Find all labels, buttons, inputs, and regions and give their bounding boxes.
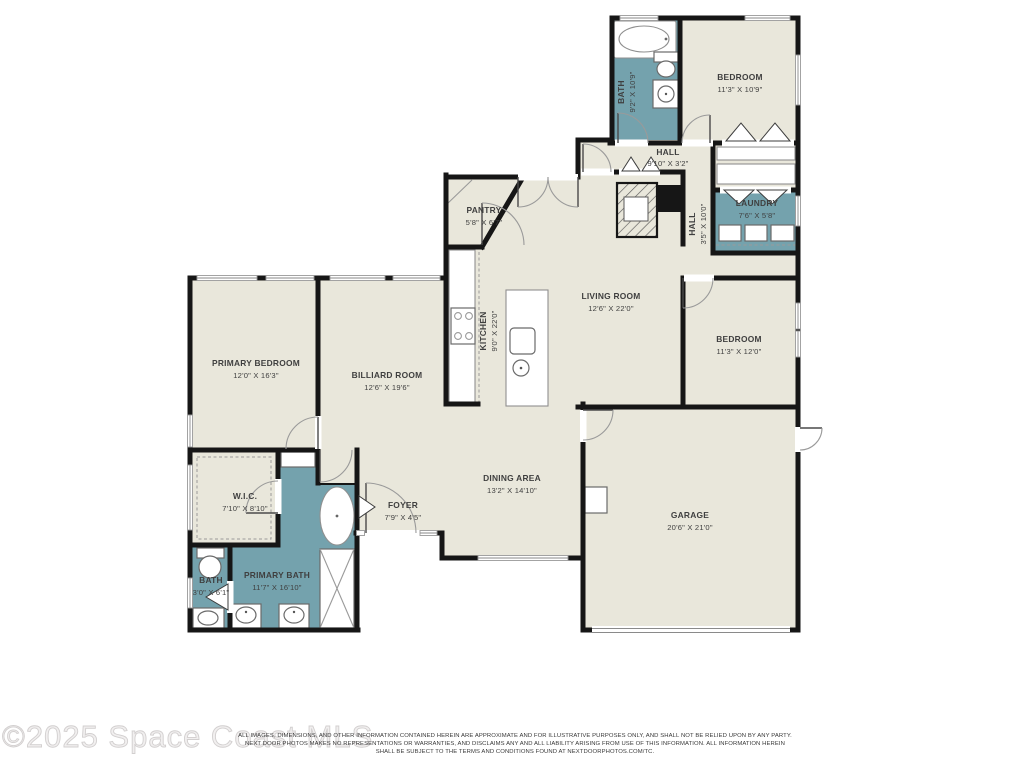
svg-text:9'0" X 22'0": 9'0" X 22'0" xyxy=(490,310,499,351)
label-living-room: LIVING ROOM xyxy=(581,291,640,301)
svg-text:7'6" X 5'8": 7'6" X 5'8" xyxy=(739,211,776,220)
label-billiard-room: BILLIARD ROOM xyxy=(352,370,423,380)
svg-text:11'3" X 10'9": 11'3" X 10'9" xyxy=(718,85,763,94)
label-laundry: LAUNDRY xyxy=(736,198,779,208)
disclaimer-line-3: SHALL BE SUBJECT TO THE TERMS AND CONDIT… xyxy=(376,749,655,755)
svg-text:13'2" X 14'10": 13'2" X 14'10" xyxy=(487,486,537,495)
label-bedroom-right: BEDROOM xyxy=(716,334,762,344)
svg-text:3'0" X 6'1": 3'0" X 6'1" xyxy=(193,588,230,597)
hall-closet-strip xyxy=(713,252,798,278)
label-foyer: FOYER xyxy=(388,500,418,510)
label-wic: W.I.C. xyxy=(233,491,257,501)
svg-text:9'2" X 10'9": 9'2" X 10'9" xyxy=(628,71,637,112)
bath-vanity xyxy=(281,452,315,467)
svg-text:7'10" X 8'10": 7'10" X 8'10" xyxy=(222,504,268,513)
svg-text:12'6" X 19'6": 12'6" X 19'6" xyxy=(364,383,410,392)
label-hall-top: HALL xyxy=(656,147,679,157)
disclaimer-line-2: NEXT DOOR PHOTOS MAKES NO REPRESENTATION… xyxy=(245,741,785,747)
island-sink-icon xyxy=(510,328,535,354)
garage-door xyxy=(592,626,790,635)
svg-text:11'3" X 12'0": 11'3" X 12'0" xyxy=(717,347,762,356)
svg-text:HALL: HALL xyxy=(687,212,697,235)
dryer-icon xyxy=(745,225,767,241)
svg-text:11'7" X 16'10": 11'7" X 16'10" xyxy=(252,583,301,592)
svg-text:9'10" X 3'2": 9'10" X 3'2" xyxy=(647,159,688,168)
svg-text:BATH: BATH xyxy=(616,80,626,104)
svg-text:20'6" X 21'0": 20'6" X 21'0" xyxy=(667,523,713,532)
svg-text:12'0" X 16'3": 12'0" X 16'3" xyxy=(233,371,279,380)
washer-icon xyxy=(719,225,741,241)
label-primary-bedroom: PRIMARY BEDROOM xyxy=(212,358,300,368)
label-primary-bath: PRIMARY BATH xyxy=(244,570,310,580)
svg-text:3'5" X 10'0": 3'5" X 10'0" xyxy=(699,203,708,244)
closet-shelf xyxy=(717,164,795,184)
disclaimer-line-1: ALL IMAGES, DIMENSIONS, AND OTHER INFORM… xyxy=(238,733,792,739)
floor-plan: BATH 9'2" X 10'9" BEDROOM 11'3" X 10'9" … xyxy=(0,0,1024,768)
label-dining-area: DINING AREA xyxy=(483,473,541,483)
label-pantry: PANTRY xyxy=(467,205,502,215)
label-bath-small: BATH xyxy=(199,575,223,585)
svg-text:7'9" X 4'5": 7'9" X 4'5" xyxy=(385,513,422,522)
laundry-counter xyxy=(771,225,794,241)
svg-text:KITCHEN: KITCHEN xyxy=(478,312,488,351)
hvac-unit xyxy=(585,487,607,513)
label-bedroom-top: BEDROOM xyxy=(717,72,763,82)
wall-mass xyxy=(657,185,681,212)
closet-shelf xyxy=(717,147,795,160)
svg-text:12'6" X 22'0": 12'6" X 22'0" xyxy=(588,304,634,313)
svg-text:5'8" X 6'7": 5'8" X 6'7" xyxy=(466,218,503,227)
label-garage: GARAGE xyxy=(671,510,709,520)
